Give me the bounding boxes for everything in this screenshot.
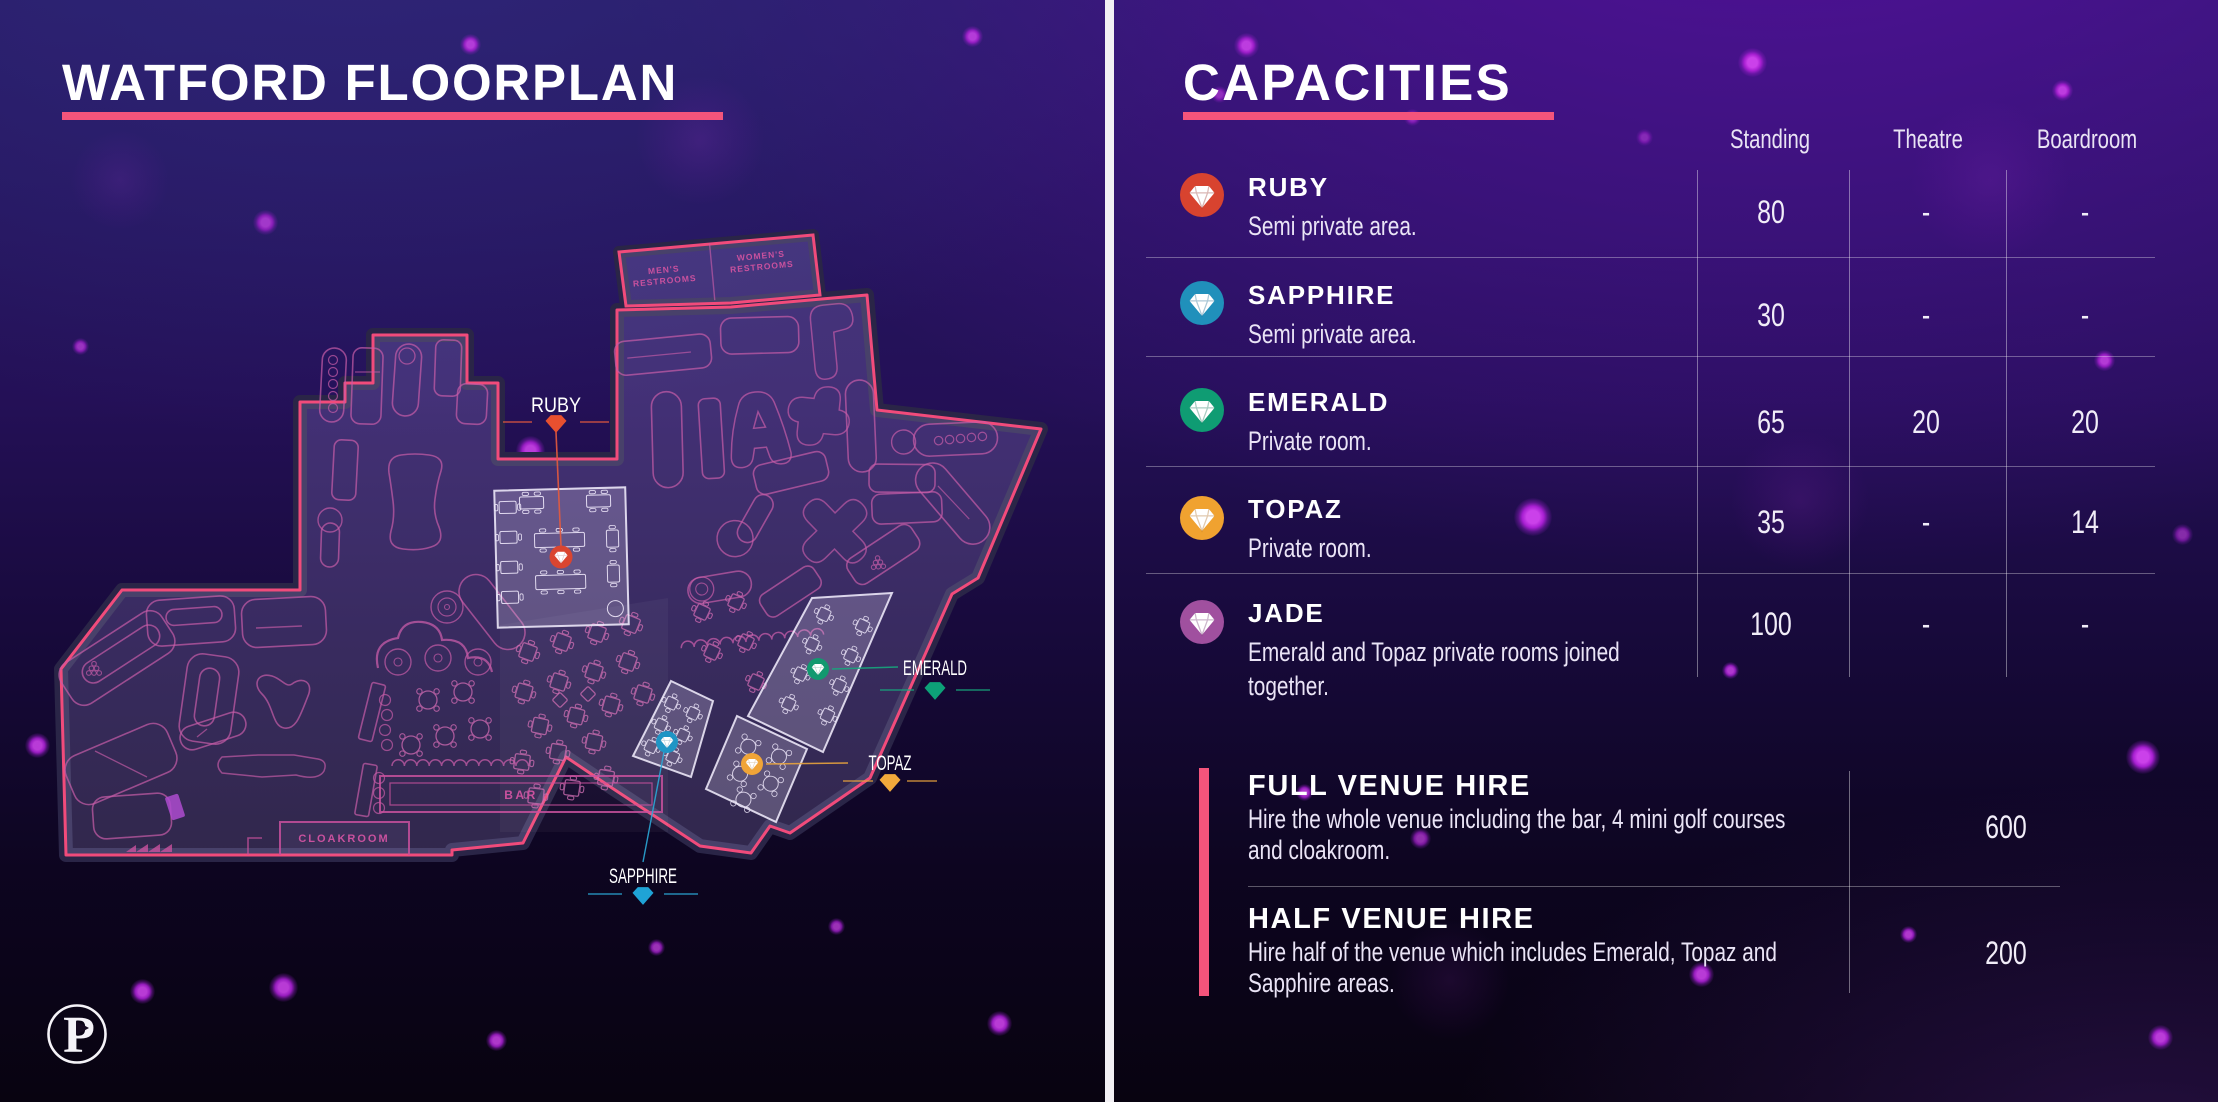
svg-text:SAPPHIRE: SAPPHIRE	[609, 865, 677, 888]
svg-text:CLOAKROOM: CLOAKROOM	[298, 833, 389, 845]
svg-text:P: P	[63, 1007, 95, 1064]
svg-text:EMERALD: EMERALD	[903, 657, 967, 680]
svg-text:TOPAZ: TOPAZ	[869, 752, 912, 775]
svg-text:BAR: BAR	[504, 788, 538, 802]
svg-text:RUBY: RUBY	[531, 394, 581, 417]
